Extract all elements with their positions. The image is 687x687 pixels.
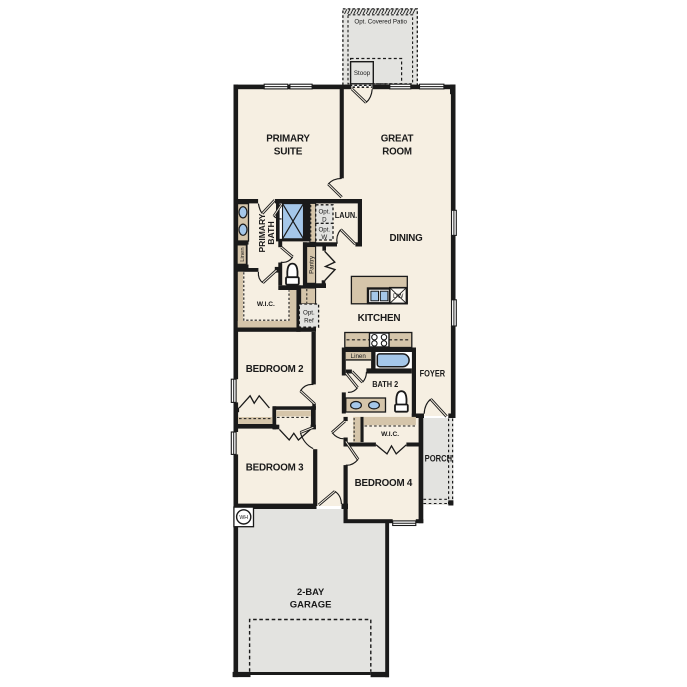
svg-text:W.I.C.: W.I.C. xyxy=(257,301,275,308)
svg-text:BEDROOM 4: BEDROOM 4 xyxy=(355,478,413,489)
svg-text:Stoop: Stoop xyxy=(354,70,371,77)
svg-text:W: W xyxy=(321,234,327,241)
svg-text:Pantry: Pantry xyxy=(308,255,315,274)
svg-text:FOYER: FOYER xyxy=(420,368,446,378)
svg-text:Ref: Ref xyxy=(304,317,314,324)
svg-text:GREAT: GREAT xyxy=(381,133,414,144)
svg-text:BATH 2: BATH 2 xyxy=(372,380,399,389)
svg-text:D: D xyxy=(322,216,327,223)
svg-text:BEDROOM 3: BEDROOM 3 xyxy=(246,463,304,474)
svg-text:LAUN.: LAUN. xyxy=(335,211,357,220)
svg-text:Opt.: Opt. xyxy=(318,209,330,216)
svg-text:Opt.: Opt. xyxy=(303,309,315,316)
svg-text:Opt.: Opt. xyxy=(318,226,330,233)
svg-text:KITCHEN: KITCHEN xyxy=(358,313,401,324)
svg-text:WH: WH xyxy=(239,515,248,521)
svg-text:BATH: BATH xyxy=(267,221,276,245)
svg-text:DW: DW xyxy=(393,293,403,300)
svg-text:Opt. Covered Patio: Opt. Covered Patio xyxy=(354,18,407,25)
svg-text:2-BAY: 2-BAY xyxy=(297,587,325,597)
svg-text:DINING: DINING xyxy=(390,233,423,244)
svg-text:Linen: Linen xyxy=(240,247,246,261)
svg-text:Linen: Linen xyxy=(351,353,367,360)
svg-text:W.I.C.: W.I.C. xyxy=(381,431,399,438)
svg-text:PRIMARY: PRIMARY xyxy=(258,213,267,253)
svg-text:PORCH: PORCH xyxy=(425,454,453,464)
svg-text:ROOM: ROOM xyxy=(382,146,412,157)
svg-text:GARAGE: GARAGE xyxy=(290,599,332,609)
svg-text:SUITE: SUITE xyxy=(274,146,303,157)
svg-text:BEDROOM 2: BEDROOM 2 xyxy=(246,364,304,375)
svg-text:PRIMARY: PRIMARY xyxy=(266,133,310,144)
